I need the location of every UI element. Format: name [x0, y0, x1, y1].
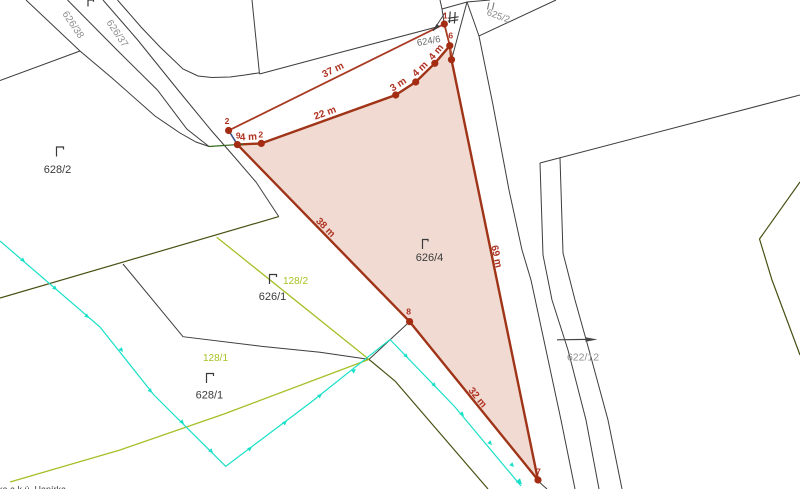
svg-text:1: 1	[443, 11, 448, 21]
svg-text:626/4: 626/4	[416, 252, 444, 264]
svg-text:7: 7	[536, 467, 541, 477]
svg-text:2: 2	[225, 116, 230, 126]
svg-text:9: 9	[236, 131, 241, 141]
svg-text:622/12: 622/12	[567, 352, 599, 364]
svg-text:128/2: 128/2	[283, 276, 308, 287]
svg-text:4 m: 4 m	[240, 132, 258, 144]
svg-text:ka a k.ú. Hanírka: ka a k.ú. Hanírka	[0, 485, 66, 489]
svg-text:2: 2	[258, 130, 263, 140]
svg-text:628/1: 628/1	[196, 390, 224, 402]
svg-text:628/2: 628/2	[44, 164, 72, 176]
svg-text:6: 6	[448, 31, 453, 41]
svg-text:128/1: 128/1	[203, 353, 228, 364]
svg-text:626/1: 626/1	[259, 291, 287, 303]
svg-text:8: 8	[406, 307, 411, 317]
